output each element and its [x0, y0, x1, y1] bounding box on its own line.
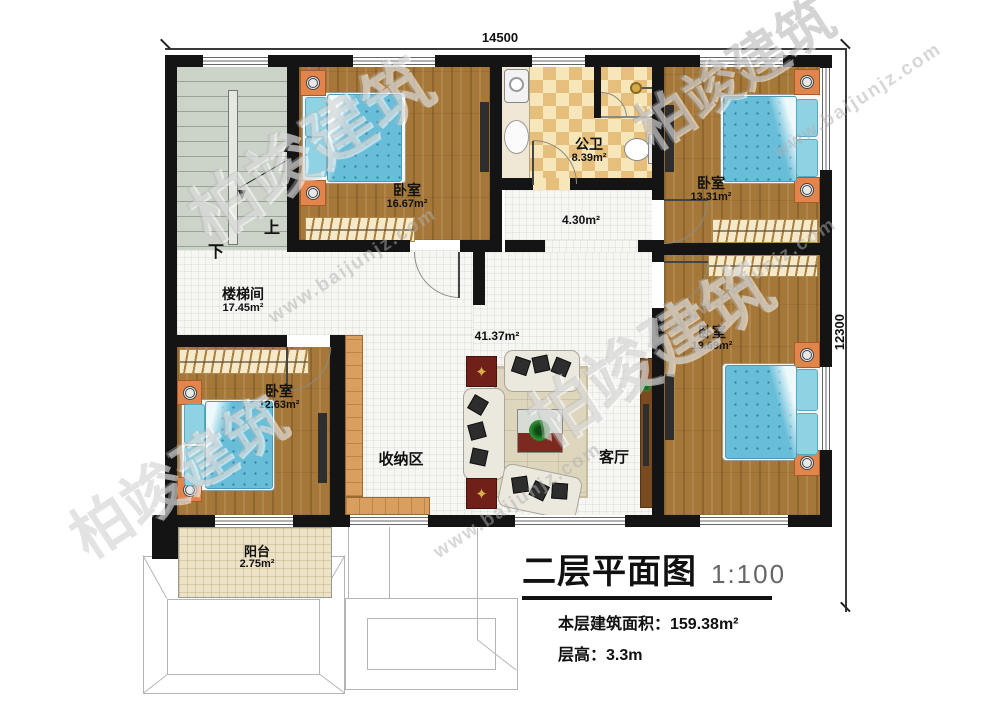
storage-floor	[345, 335, 473, 515]
title-underline	[522, 596, 772, 600]
wall-bedroom2-bedroom3	[652, 243, 820, 255]
room-area-balcony: 2.75m²	[230, 558, 284, 570]
window-bedroom2-top	[700, 55, 783, 67]
window-bedroom2-right	[820, 68, 832, 170]
wardrobe	[305, 217, 415, 242]
window-living	[515, 515, 625, 527]
sofa-cushion	[529, 480, 550, 501]
wall-bedroom3-left-stub	[652, 255, 664, 262]
title-block: 二层平面图 1:100 本层建筑面积：159.38m² 层高：3.3m	[522, 544, 822, 665]
wall-hall-living-stub	[473, 245, 485, 305]
room-area-bedroom3: 19.69m²	[682, 340, 742, 352]
roof-outline-strip	[348, 519, 390, 599]
wall-stair-bedroom1	[287, 55, 299, 252]
pillow	[796, 369, 818, 411]
nightstand	[300, 70, 326, 96]
room-label-bedroom1: 卧室	[377, 183, 437, 198]
door-leaf-bedroom3	[664, 261, 708, 263]
lamp-icon	[800, 75, 814, 89]
window-bedroom1	[353, 55, 435, 67]
room-label-bathroom: 公卫	[559, 137, 619, 152]
wall-bedroom4-top	[177, 335, 287, 347]
sofa-cushion	[511, 476, 529, 494]
lamp-icon	[183, 386, 197, 400]
dimension-line-top	[165, 48, 846, 50]
pillow	[305, 97, 327, 137]
wardrobe	[708, 255, 818, 277]
stair-up-label: 上	[258, 220, 286, 238]
room-area-bedroom2: 13.31m²	[681, 191, 741, 203]
sofa-cushion	[467, 394, 489, 416]
roof-outline-left-inner	[167, 599, 320, 675]
toilet-bowl	[624, 138, 650, 161]
floorplan-canvas: ✦ ✦ 卧室 16.67m² 公卫 8.39m² 卧室 13.31m² 卧室 1…	[0, 0, 1000, 706]
mat-star-icon: ✦	[475, 363, 488, 381]
room-area-living: 41.37m²	[462, 330, 532, 343]
wall-shower-partition	[594, 67, 601, 118]
room-area-stairwell: 17.45m²	[212, 302, 274, 314]
wall-balcony-left	[152, 515, 178, 559]
pillow	[796, 139, 818, 177]
floor-height-text: 层高：3.3m	[558, 641, 822, 665]
mattress	[205, 401, 273, 489]
sofa-cushion	[467, 421, 487, 441]
nightstand	[794, 69, 820, 95]
wall-bedroom1-right	[490, 55, 502, 252]
pillow	[305, 137, 327, 177]
plan-title: 二层平面图	[522, 544, 697, 593]
nightstand	[794, 177, 820, 203]
pillow	[184, 404, 205, 444]
sofa-top	[504, 350, 580, 392]
window-balcony-door	[215, 515, 293, 527]
room-area-bathroom: 8.39m²	[559, 152, 619, 164]
pillow	[796, 413, 818, 455]
wardrobe	[712, 219, 818, 243]
mattress	[327, 94, 402, 182]
room-label-bedroom3: 卧室	[682, 325, 742, 340]
hallway-opening	[545, 240, 638, 252]
window-bedroom3-bottom	[700, 515, 788, 527]
mattress	[725, 365, 797, 459]
lamp-icon	[800, 456, 814, 470]
mat-star-icon: ✦	[475, 485, 488, 503]
nightstand	[300, 180, 326, 206]
wall-left	[165, 55, 177, 527]
stair-arrow-down	[238, 190, 246, 200]
sofa-cushion	[470, 448, 489, 467]
wall-bathroom-bottom-a	[502, 178, 533, 190]
tv	[318, 413, 327, 483]
wall-bath-bedroom2	[652, 55, 664, 200]
stair-rail	[228, 90, 238, 245]
sofa-left	[463, 388, 505, 480]
nightstand	[794, 342, 820, 368]
pillow	[184, 446, 205, 486]
lamp-icon	[306, 186, 320, 200]
wall-hall-bottom-a	[505, 240, 545, 252]
storage-shelf-horizontal	[345, 497, 430, 515]
door-leaf-bathroom	[532, 141, 534, 185]
lamp-icon	[800, 183, 814, 197]
sofa-cushion	[532, 355, 551, 374]
room-area-hallway: 4.30m²	[550, 214, 612, 227]
stair-down-label: 下	[202, 244, 230, 262]
door-leaf-bedroom1	[458, 252, 460, 298]
side-mat: ✦	[466, 478, 497, 509]
wall-bathroom-bottom-b	[570, 178, 658, 190]
nightstand	[177, 380, 202, 405]
dimension-width-label: 14500	[460, 31, 540, 45]
pillow	[796, 99, 818, 137]
tv	[665, 105, 674, 172]
room-area-bedroom1: 16.67m²	[377, 198, 437, 210]
room-label-storage: 收纳区	[370, 452, 432, 469]
tv	[480, 102, 489, 172]
room-label-stairwell: 楼梯间	[212, 287, 274, 302]
shower-head-icon	[630, 82, 642, 94]
room-area-bedroom4: 12.63m²	[248, 399, 310, 411]
washing-machine-drum	[509, 77, 524, 92]
window-storage	[350, 515, 428, 527]
tv	[665, 374, 674, 440]
sofa-cushion	[551, 483, 568, 500]
side-mat: ✦	[466, 356, 497, 387]
plan-scale: 1:100	[711, 559, 786, 590]
sofa-cushion	[551, 357, 572, 378]
roof-edge-line	[477, 528, 478, 640]
sink	[504, 120, 529, 154]
floor-area-text: 本层建筑面积：159.38m²	[558, 610, 822, 634]
window-stairwell	[203, 55, 268, 67]
plant	[529, 420, 550, 441]
tv	[643, 404, 649, 466]
room-label-living: 客厅	[592, 450, 636, 467]
lamp-icon	[800, 348, 814, 362]
wall-bedroom3-left	[652, 308, 664, 515]
wall-bedroom1-bottom-a	[287, 240, 410, 252]
window-bedroom3-right	[820, 367, 832, 450]
room-label-bedroom4: 卧室	[249, 384, 309, 399]
dimension-height-label: 12300	[833, 302, 847, 362]
storage-shelf-vertical	[345, 335, 363, 497]
lamp-icon	[306, 76, 320, 90]
mattress	[723, 96, 797, 182]
cabinet-plant	[641, 382, 651, 392]
sofa-cushion	[511, 356, 531, 376]
room-label-bedroom2: 卧室	[681, 176, 741, 191]
window-bathroom	[532, 55, 585, 67]
wall-bedroom4-right	[330, 335, 345, 515]
